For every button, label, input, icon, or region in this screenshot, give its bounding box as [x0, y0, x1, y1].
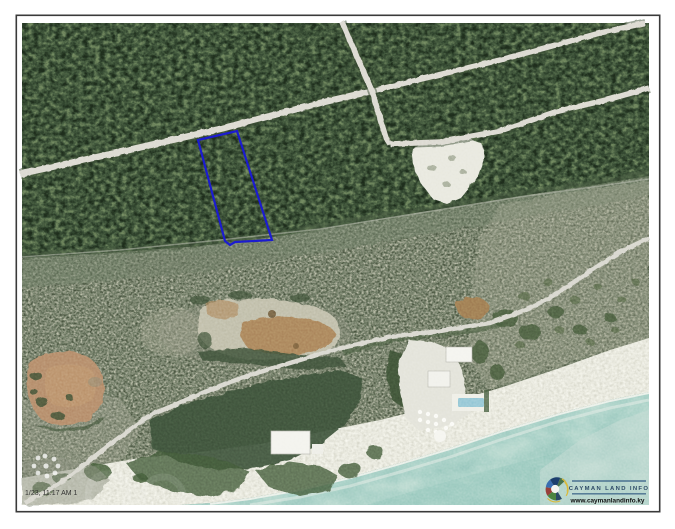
- svg-text:CAYMAN LAND INFO: CAYMAN LAND INFO: [569, 486, 650, 492]
- svg-text:1/23, 11:17 AM 1: 1/23, 11:17 AM 1: [25, 490, 78, 497]
- svg-text:www.caymanlandinfo.ky: www.caymanlandinfo.ky: [570, 497, 645, 504]
